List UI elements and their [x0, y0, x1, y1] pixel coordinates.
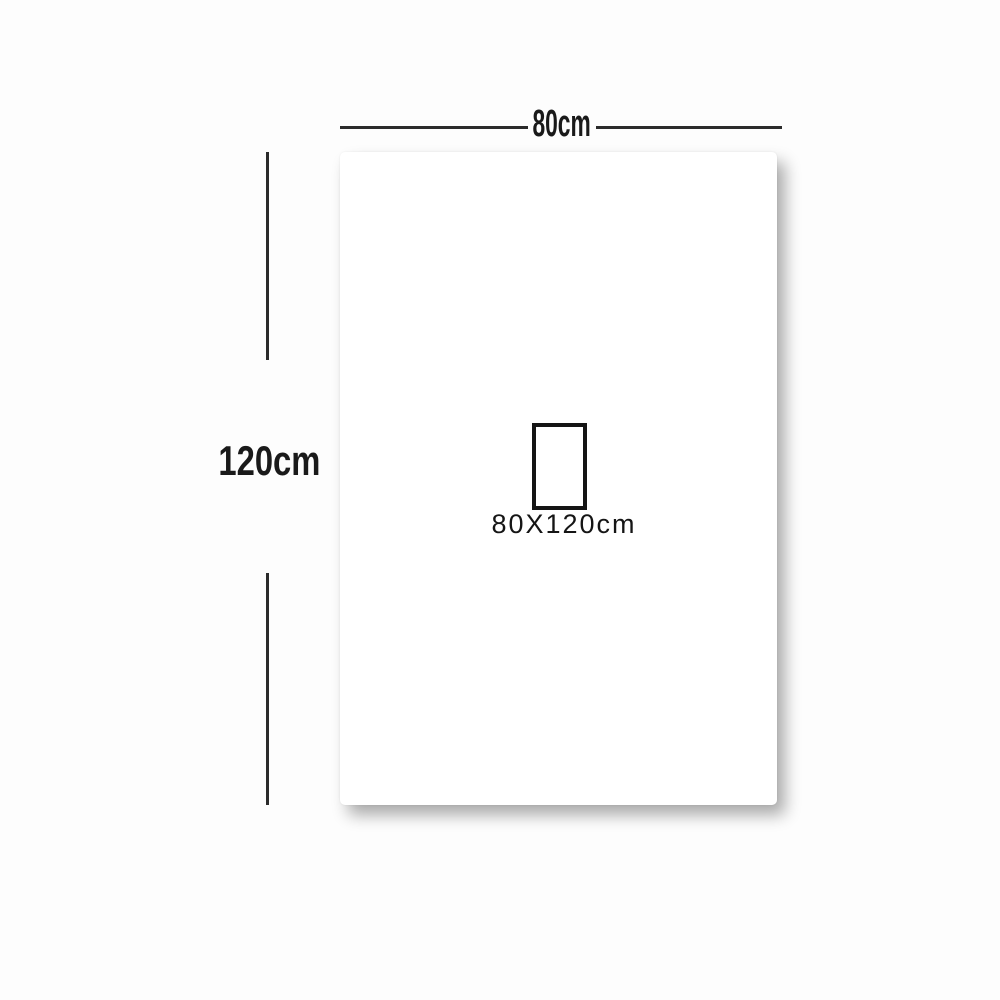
height-dimension-label: 120cm: [189, 440, 349, 482]
height-dimension-line-top: [266, 152, 269, 360]
width-dimension-text: 80cm: [533, 105, 591, 143]
dimension-diagram: 80cm 120cm 80X120cm: [0, 0, 1000, 1000]
height-dimension-line-bottom: [266, 573, 269, 805]
size-outline-rect: [532, 423, 587, 510]
height-dimension-text: 120cm: [218, 440, 320, 482]
size-label: 80X120cm: [444, 510, 684, 538]
width-dimension-label: 80cm: [482, 105, 642, 143]
